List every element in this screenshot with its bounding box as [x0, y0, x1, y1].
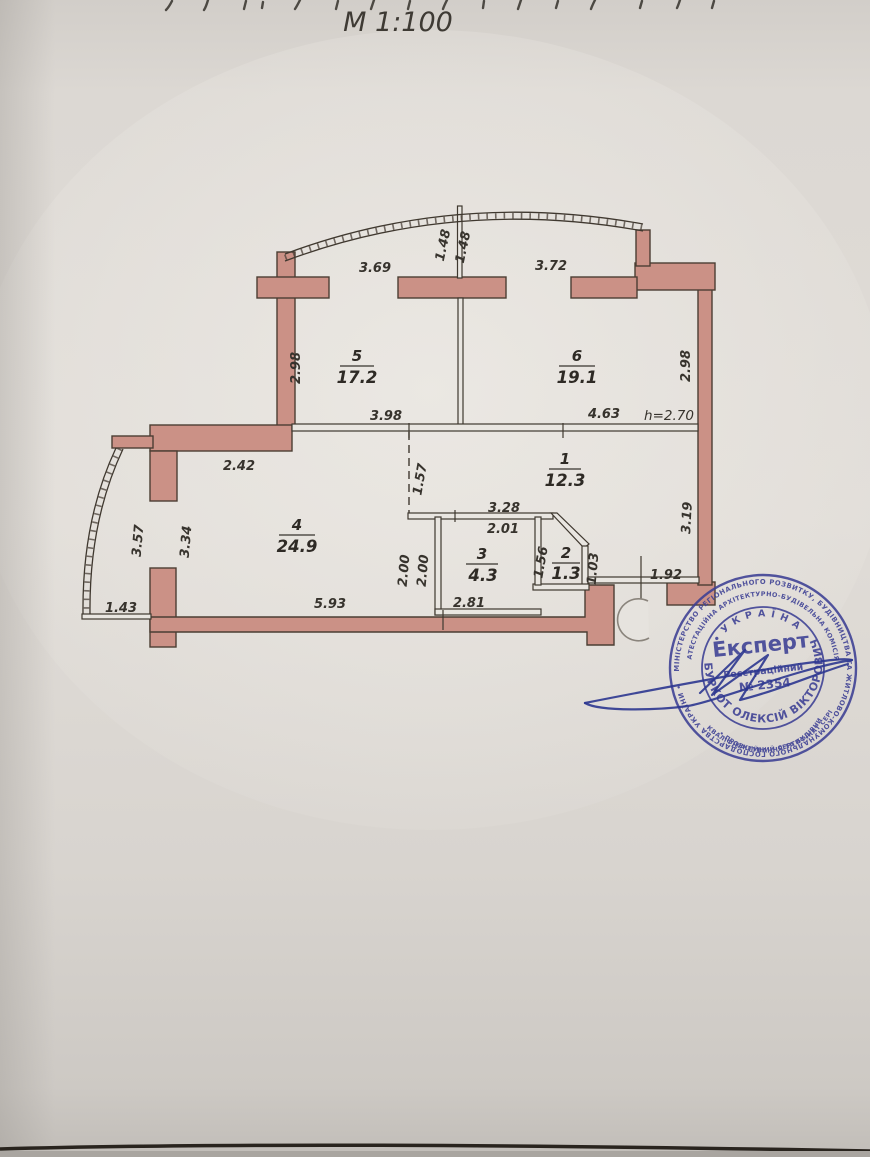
wall-top-segment-2	[571, 277, 637, 298]
partition-room5-room6	[458, 298, 463, 425]
dim-room5-top: 3.69	[359, 261, 391, 276]
dim-room3-left-b: 2.00	[415, 554, 433, 587]
dim-room6-top: 3.72	[535, 259, 567, 274]
room2-area: 1.3	[551, 564, 580, 583]
wall-top-segment-1	[398, 277, 506, 298]
dim-entrance-door: 1.92	[650, 568, 682, 583]
wall-room3-left	[435, 517, 441, 615]
wall-top-right-band	[635, 263, 715, 290]
dim-balcony-bottom-left: 1.43	[105, 601, 137, 616]
dim-room3-bottom: 2.81	[453, 596, 485, 611]
room4-number: 4	[291, 516, 302, 534]
dim-balcony-left-outer: 3.57	[130, 523, 148, 557]
dim-hall-right: 3.19	[679, 501, 696, 534]
dim-room3-left-a: 2.00	[396, 554, 414, 587]
wall-right	[698, 288, 712, 585]
room6-number: 6	[572, 347, 582, 365]
dim-room4-top: 2.42	[223, 459, 255, 474]
wall-balcony-stub	[112, 436, 153, 448]
dim-room4-bottom: 5.93	[314, 597, 346, 612]
room4-area: 24.9	[277, 537, 318, 556]
wall-room3-bottom	[435, 609, 541, 615]
room5-area: 17.2	[337, 368, 378, 387]
dim-room5-left: 2.98	[289, 352, 304, 384]
room3-area: 4.3	[467, 566, 497, 585]
wall-room5-top-left	[257, 277, 329, 298]
wall-arc-connector-right	[636, 230, 650, 266]
room3-number: 3	[477, 545, 487, 563]
dim-room3-top: 2.01	[487, 522, 519, 537]
dim-room2-right: 1.03	[585, 552, 603, 585]
wall-hall-bottom	[588, 577, 699, 583]
wall-room3-top	[408, 513, 553, 519]
ceiling-height-note: h=2.70	[644, 408, 694, 424]
dim-room4-left: 3.34	[178, 525, 196, 558]
wall-rooms56-bottom	[292, 424, 698, 431]
dim-room6-bottom: 4.63	[587, 407, 620, 422]
dim-hall-bottom: 3.28	[488, 501, 520, 516]
wall-left-bottom-pier	[150, 568, 176, 647]
room1-number: 1	[560, 450, 570, 468]
dim-room6-right: 2.98	[679, 350, 694, 382]
wall-room4-pier	[150, 451, 177, 501]
scale-label: М 1:100	[343, 7, 453, 38]
room1-area: 12.3	[545, 471, 586, 490]
floor-plan-photo: М 1:100	[0, 0, 870, 1157]
room5-number: 5	[352, 347, 362, 365]
dim-room5-bottom: 3.98	[370, 409, 402, 424]
room2-number: 2	[561, 544, 571, 562]
wall-room4-step	[150, 425, 292, 451]
room6-area: 19.1	[557, 368, 598, 387]
